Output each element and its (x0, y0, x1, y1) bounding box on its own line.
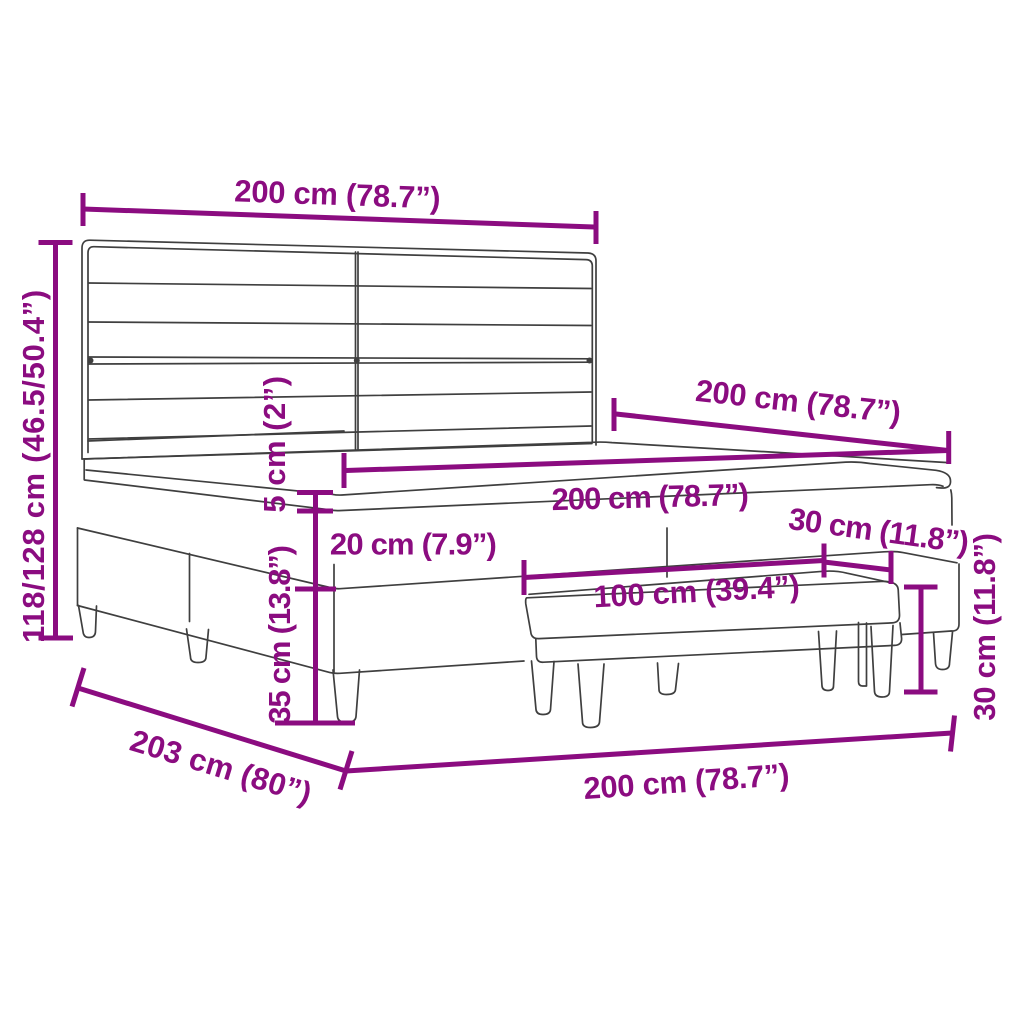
svg-text:35 cm (13.8”): 35 cm (13.8”) (262, 546, 297, 723)
svg-text:20 cm (7.9”): 20 cm (7.9”) (330, 527, 496, 562)
svg-text:118/128 cm (46.5/50.4”): 118/128 cm (46.5/50.4”) (16, 289, 51, 643)
svg-text:5 cm (2”): 5 cm (2”) (257, 375, 292, 512)
svg-text:30 cm (11.8”): 30 cm (11.8”) (967, 533, 1002, 720)
svg-text:200 cm (78.7”): 200 cm (78.7”) (551, 477, 748, 517)
svg-text:200 cm (78.7”): 200 cm (78.7”) (234, 173, 441, 215)
